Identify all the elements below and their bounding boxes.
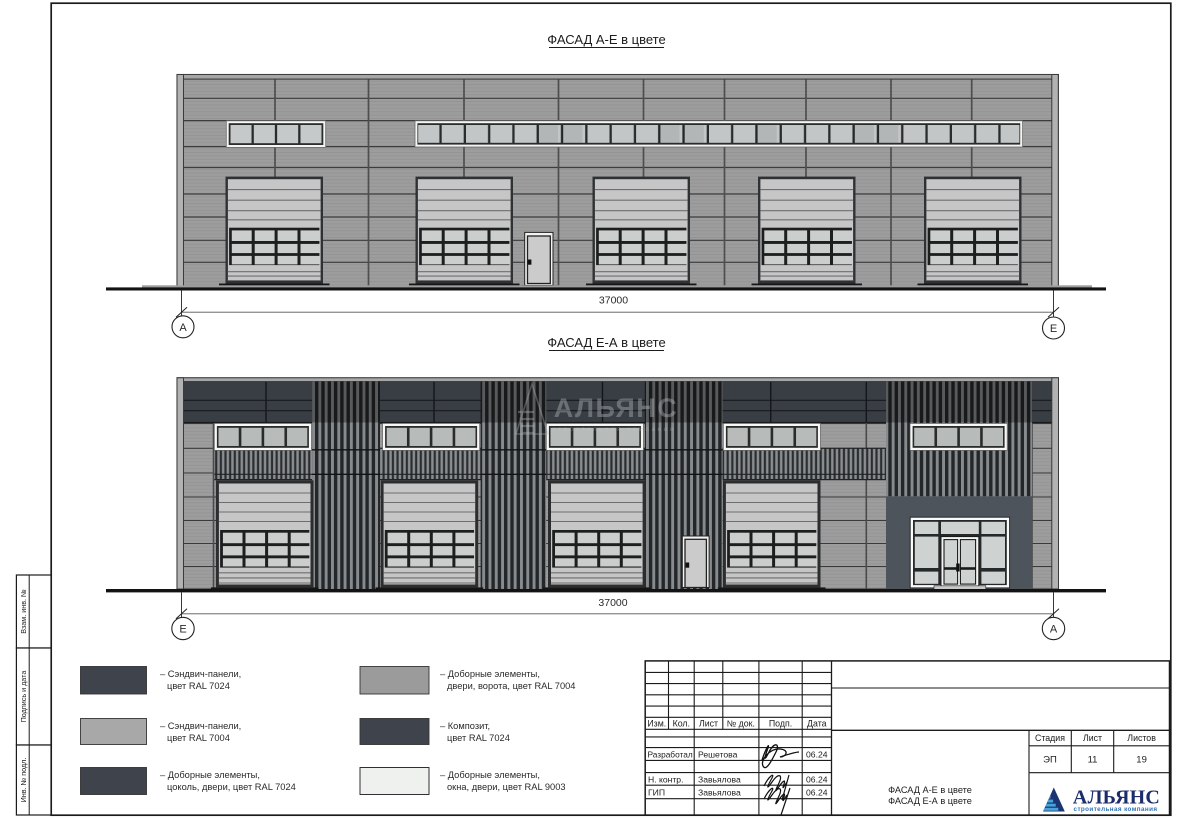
svg-text:Подпись и дата: Подпись и дата [19, 671, 28, 723]
svg-text:– Доборные элементы,: – Доборные элементы, [160, 770, 260, 780]
svg-text:11: 11 [1088, 755, 1098, 766]
svg-text:А: А [1050, 624, 1058, 636]
svg-text:37000: 37000 [599, 295, 628, 307]
svg-text:Кол.: Кол. [673, 719, 690, 729]
svg-text:Е: Е [179, 624, 186, 636]
svg-text:ФАСАД А-Е в цвете: ФАСАД А-Е в цвете [888, 785, 972, 795]
svg-text:– Доборные элементы,: – Доборные элементы, [440, 770, 540, 780]
svg-text:– Сэндвич-панели,: – Сэндвич-панели, [160, 669, 241, 679]
svg-text:ФАСАД Е-А в цвете: ФАСАД Е-А в цвете [888, 796, 972, 806]
svg-text:№ док.: № док. [727, 719, 755, 729]
svg-text:37000: 37000 [598, 597, 627, 609]
svg-text:окна, двери, цвет RAL 9003: окна, двери, цвет RAL 9003 [447, 782, 566, 792]
svg-text:Стадия: Стадия [1035, 733, 1065, 743]
svg-text:ГИП: ГИП [648, 788, 665, 798]
svg-text:06.24: 06.24 [806, 775, 828, 785]
svg-text:ФАСАД Е-А в цвете: ФАСАД Е-А в цвете [547, 335, 665, 350]
svg-text:строительная компания: строительная компания [1074, 806, 1158, 813]
svg-text:Решетова: Решетова [698, 750, 738, 760]
svg-text:цвет RAL 7024: цвет RAL 7024 [447, 733, 510, 743]
svg-text:ЭП: ЭП [1043, 755, 1057, 766]
svg-text:Лист: Лист [1083, 733, 1102, 743]
svg-text:ФАСАД А-Е в цвете: ФАСАД А-Е в цвете [547, 32, 665, 47]
svg-text:06.24: 06.24 [806, 788, 828, 798]
svg-text:Н. контр.: Н. контр. [648, 775, 683, 785]
svg-text:Е: Е [1050, 323, 1057, 335]
svg-text:Инв. № подл.: Инв. № подл. [19, 758, 28, 803]
svg-text:двери, ворота, цвет RAL 7004: двери, ворота, цвет RAL 7004 [447, 681, 575, 691]
svg-text:– Композит,: – Композит, [440, 721, 490, 731]
svg-text:– Сэндвич-панели,: – Сэндвич-панели, [160, 721, 241, 731]
svg-text:Дата: Дата [807, 719, 827, 729]
svg-text:Завьялова: Завьялова [698, 788, 741, 798]
svg-text:цвет RAL 7004: цвет RAL 7004 [167, 733, 230, 743]
svg-text:Взам. инв. №: Взам. инв. № [19, 589, 28, 634]
svg-text:Изм.: Изм. [647, 719, 666, 729]
svg-text:АЛЬЯНС: АЛЬЯНС [554, 393, 679, 423]
svg-text:06.24: 06.24 [806, 750, 828, 760]
svg-text:Подп.: Подп. [769, 719, 792, 729]
svg-text:строительная компания: строительная компания [552, 426, 675, 433]
svg-text:цоколь, двери, цвет RAL 7024: цоколь, двери, цвет RAL 7024 [167, 782, 296, 792]
svg-text:Завьялова: Завьялова [698, 775, 741, 785]
svg-text:А: А [179, 322, 187, 334]
svg-text:Разработал: Разработал [648, 750, 693, 760]
svg-text:Лист: Лист [699, 719, 718, 729]
svg-text:Листов: Листов [1127, 733, 1156, 743]
svg-text:– Доборные элементы,: – Доборные элементы, [440, 669, 540, 679]
svg-text:цвет RAL 7024: цвет RAL 7024 [167, 681, 230, 691]
svg-text:19: 19 [1136, 755, 1147, 766]
